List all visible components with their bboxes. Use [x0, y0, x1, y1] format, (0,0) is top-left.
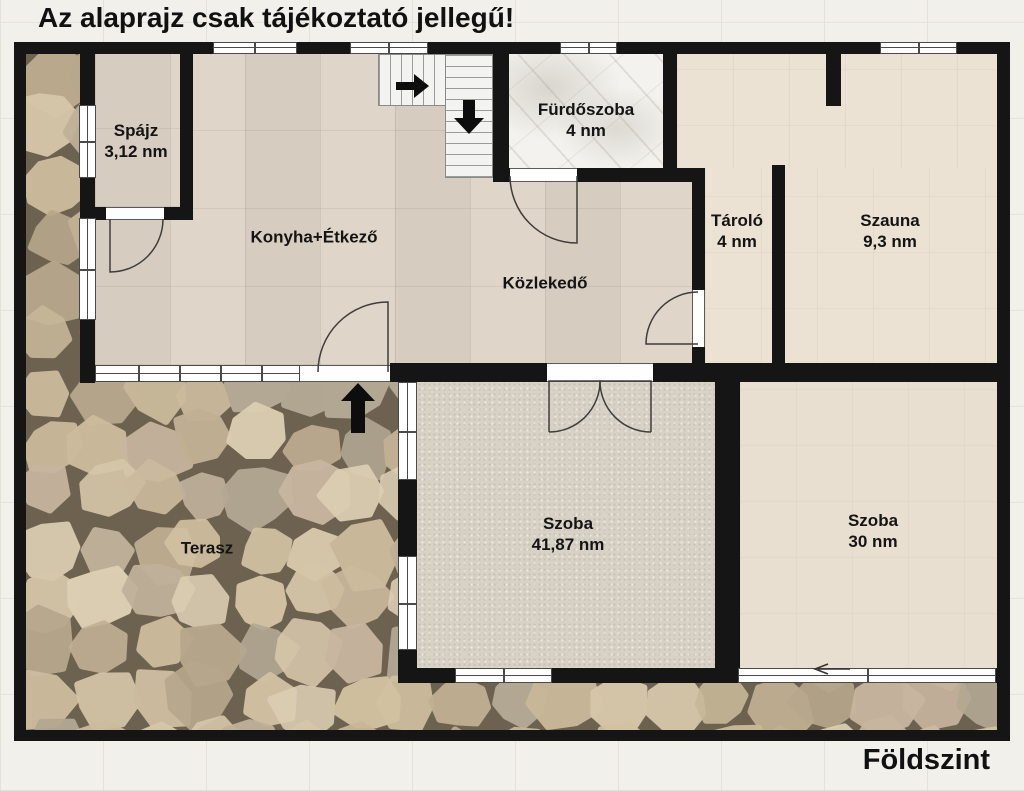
wall-tarolo-left [692, 182, 705, 380]
konyha-name: Konyha+Étkező [250, 227, 377, 248]
tarolo-name: Tároló [711, 210, 763, 231]
kozlekedo-label: Közlekedő [502, 273, 587, 294]
page-title: Az alaprajz csak tájékoztató jellegű! [38, 2, 514, 34]
wall-bath-left [493, 54, 509, 182]
window-konyha-top [213, 42, 297, 54]
wall-szauna-stub [826, 54, 841, 106]
furdoszoba-area: 4 nm [538, 120, 634, 141]
szoba2-name: Szoba [848, 510, 898, 531]
szoba2-label: Szoba 30 nm [848, 510, 898, 552]
border-wall-right [997, 42, 1010, 741]
staircase-upper-flight [378, 54, 447, 106]
window-konyha-south [95, 365, 300, 382]
szauna-name: Szauna [860, 210, 920, 231]
floor-plan-page: Az alaprajz csak tájékoztató jellegű! [0, 0, 1024, 791]
entry-door-threshold [300, 365, 390, 382]
furdoszoba-label: Fürdőszoba 4 nm [538, 99, 634, 141]
border-wall-top [14, 42, 1010, 54]
window-spajz-left [79, 105, 96, 178]
szoba1-area: 41,87 nm [532, 534, 605, 555]
window-szoba1-left-lower [398, 556, 417, 650]
window-bath-top [560, 42, 617, 54]
szauna-label: Szauna 9,3 nm [860, 210, 920, 252]
wall-tarolo-right [772, 165, 785, 380]
floor-name: Földszint [863, 744, 990, 777]
window-szoba1-left-upper [398, 382, 417, 480]
border-wall-bottom [14, 730, 1010, 741]
spajz-label: Spájz 3,12 nm [104, 120, 167, 162]
szauna-tarolo-floor [705, 168, 998, 365]
szoba1-label: Szoba 41,87 nm [532, 513, 605, 555]
wall-middle [390, 363, 998, 382]
spajz-door-threshold [106, 207, 164, 220]
sliding-door-szoba2 [738, 668, 996, 683]
terasz-name: Terasz [181, 538, 234, 559]
staircase-lower-flight [445, 54, 493, 178]
terasz-label: Terasz [181, 538, 234, 559]
border-wall-left [14, 42, 26, 741]
kozlekedo-name: Közlekedő [502, 273, 587, 294]
szoba1-double-door-threshold [547, 363, 653, 382]
wall-szoba-divider [715, 382, 740, 670]
tarolo-area: 4 nm [711, 231, 763, 252]
window-stairs-top [350, 42, 428, 54]
window-konyha-left [79, 218, 96, 320]
szoba1-name: Szoba [532, 513, 605, 534]
wall-bath-right [663, 54, 677, 182]
spajz-area: 3,12 nm [104, 141, 167, 162]
bath-door-threshold [510, 168, 577, 182]
tarolo-door-threshold [692, 290, 705, 347]
wall-spajz-right [180, 54, 193, 220]
szoba2-area: 30 nm [848, 531, 898, 552]
konyha-label: Konyha+Étkező [250, 227, 377, 248]
window-szauna-top [880, 42, 957, 54]
szauna-area: 9,3 nm [860, 231, 920, 252]
window-szoba1-bottom [455, 668, 552, 683]
tarolo-label: Tároló 4 nm [711, 210, 763, 252]
furdoszoba-name: Fürdőszoba [538, 99, 634, 120]
spajz-name: Spájz [104, 120, 167, 141]
